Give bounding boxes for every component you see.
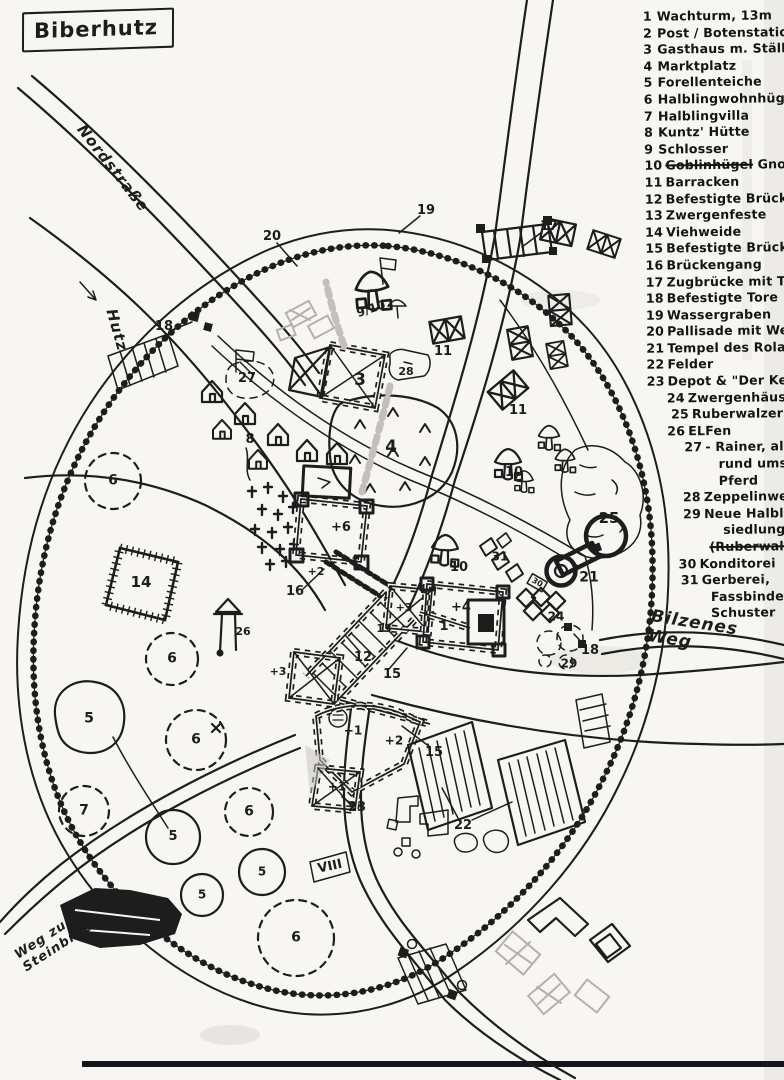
legend-item-text: Depot & "Der Keller" (668, 372, 784, 389)
legend-item: 6Halblingwohnhügel (644, 90, 781, 108)
map-marker: 6 (167, 652, 177, 667)
map-marker: 18 (155, 320, 173, 334)
map-marker: +3 (396, 602, 413, 614)
legend-item-text-struck: (Ruberwalzer) (709, 538, 784, 554)
legend-item-number: 11 (645, 174, 663, 191)
legend-item: 12Befestigte Brücke (645, 190, 782, 208)
legend-item-number: 25 (671, 407, 689, 424)
legend-item-number: 13 (645, 208, 663, 225)
map-marker: 19 (417, 204, 435, 218)
fields (408, 722, 585, 845)
legend-item: 10Goblinhügel Gnompilze (644, 157, 781, 175)
legend-item-number: 17 (646, 274, 664, 291)
map-marker: 7 (79, 804, 89, 819)
legend-item: 27- Rainer, alles (647, 439, 784, 457)
map-marker: 29 (561, 658, 578, 671)
map-marker: +1 (328, 781, 346, 794)
map-marker: +2 (308, 566, 325, 578)
legend-item-number: 24 (667, 390, 685, 407)
legend-item: 3Gasthaus m. Ställen (643, 40, 780, 58)
legend-item-number: 9 (644, 141, 655, 158)
legend-item-text: Felder (667, 356, 713, 371)
legend-item-number: 3 (643, 42, 654, 59)
legend-item: 8Kuntz' Hütte (644, 123, 781, 141)
legend-item-number: 6 (644, 92, 655, 109)
legend-item-number: 31 (681, 572, 699, 589)
legend-item-text: ELFen (688, 423, 731, 438)
legend-item-text: Zeppelinwerft (704, 488, 784, 504)
legend-item: 17Zugbrücke mit Türmen (646, 273, 783, 291)
map-marker: 8 (245, 433, 254, 447)
map-marker: 27 (238, 372, 256, 386)
legend-item-subline: (Ruberwalzer) (648, 538, 784, 556)
map-marker: +2 (385, 735, 403, 748)
legend-item-subline: siedlung (648, 522, 784, 540)
legend-item-text: Post / Botenstation (657, 24, 784, 40)
legend-item-number: 16 (645, 257, 663, 274)
legend-item-number: 30 (679, 556, 697, 573)
map-marker: 26 (235, 626, 250, 638)
map-marker: 16 (286, 585, 304, 599)
legend-item: 5Forellenteiche (643, 74, 780, 92)
map-marker: 11 (434, 345, 452, 359)
map-marker: +3 (270, 666, 287, 678)
legend-item: 22Felder (646, 356, 783, 374)
legend-item: 18Befestigte Tore (646, 289, 783, 307)
map-marker: 4 (385, 439, 397, 457)
map-marker: 10 (505, 466, 523, 480)
legend-item: 11Barracken (645, 173, 782, 191)
map-marker: 28 (398, 366, 413, 378)
legend-item-text: Zwergenhäuser (688, 389, 784, 405)
legend-item-text: Pallisade mit Wehrgängen (667, 322, 784, 339)
map-marker: 20 (263, 230, 281, 244)
legend-item: 28Zeppelinwerft (648, 488, 784, 506)
legend-item: 13Zwergenfeste (645, 206, 782, 224)
map-marker: 3 (354, 372, 366, 390)
legend-item-number: 15 (645, 241, 663, 258)
legend-item-number: 22 (646, 357, 664, 374)
legend-item-text: Pferd (719, 472, 759, 487)
legend-item-number: 21 (646, 340, 664, 357)
map-marker: 15 (425, 746, 443, 760)
outer-estate (496, 898, 630, 1014)
legend-item: 23Depot & "Der Keller" (647, 372, 784, 390)
map-marker: 5 (198, 889, 206, 902)
legend-item: 21Tempel des Roland (646, 339, 783, 357)
legend-item-text: Gerberei, (702, 572, 770, 588)
legend-item-number: 14 (645, 224, 663, 241)
legend-item-text: Fassbinderei, (711, 588, 784, 604)
legend-item-text-struck: Goblinhügel (665, 157, 753, 173)
map-marker: 25 (599, 511, 620, 527)
legend-item: 14Viehweide (645, 223, 782, 241)
map-marker: 15 (383, 668, 401, 682)
legend-item-number: 26 (667, 423, 685, 440)
legend-item-text: Neue Halbling- (704, 505, 784, 521)
farm-buildings (387, 796, 508, 858)
legend-item: 15Befestigte Brückenhäuser (645, 240, 782, 258)
legend-item: 25Ruberwalzer (647, 406, 784, 424)
legend-item-text: rund ums (718, 455, 784, 471)
map-marker: 11 (509, 404, 527, 418)
legend-item-text: siedlung (723, 522, 784, 538)
legend-item-text: Wassergraben (667, 306, 771, 322)
legend-item-text: - Rainer, alles (705, 439, 784, 455)
map-marker: 14 (131, 575, 152, 591)
legend-item-number: 10 (644, 158, 662, 175)
legend-item: 29Neue Halbling- (648, 505, 784, 523)
map-marker: 12 (354, 651, 372, 665)
legend-item-text: Gasthaus m. Ställen (657, 40, 784, 57)
legend-item-text: Gnompilze (753, 156, 784, 172)
legend-item-number: 20 (646, 324, 664, 341)
map-marker: 13 (376, 623, 391, 635)
map-marker: 17 (540, 220, 558, 234)
legend-item-number: 1 (643, 9, 654, 26)
map-title: Biberhutz (22, 8, 174, 53)
map-marker: 5 (84, 712, 94, 727)
legend-item-number: 12 (645, 191, 663, 208)
map-marker: 31 (492, 551, 509, 564)
legend-item-number: 2 (643, 25, 654, 42)
legend-item-number: 18 (646, 291, 664, 308)
map-marker: +6 (331, 521, 351, 535)
legend-item: 1Wachturm, 13m (643, 7, 780, 25)
legend-item-number: 19 (646, 307, 664, 324)
legend-item-number: 23 (647, 374, 665, 391)
legend-item-number: 7 (644, 108, 655, 125)
legend-item: 31Gerberei, (649, 571, 784, 589)
map-marker: 6 (291, 931, 301, 946)
legend-item-text: Befestigte Brückenhäuser (666, 239, 784, 256)
legend-item-text: Zugbrücke mit Türmen (667, 272, 784, 289)
map-marker: 6 (108, 474, 118, 489)
map-marker: +4 (451, 601, 471, 615)
east-palisade-river-crossing (576, 694, 610, 748)
scanned-map-page: Biberhutz 1Wachturm, 13m2Post / Botensta… (0, 0, 784, 1080)
map-marker: 5 (168, 830, 177, 844)
legend-item-number: 5 (643, 75, 654, 92)
legend-item-number: 4 (643, 58, 654, 75)
map-marker: 10 (450, 561, 468, 575)
map-marker: 5 (258, 866, 266, 879)
legend-item-text: Halblingvilla (658, 107, 749, 123)
legend-item-text: Barracken (665, 174, 739, 190)
legend-item-text: Wachturm, 13m (657, 7, 772, 23)
map-marker: 23 (348, 801, 366, 815)
legend-item-number: 27 (684, 440, 702, 457)
legend-item-number: 29 (683, 506, 701, 523)
legend-item-text: Forellenteiche (657, 74, 761, 90)
legend-item-text: Schlosser (658, 141, 728, 157)
map-marker: 18 (581, 644, 599, 658)
legend-item: 30Konditorei (649, 555, 784, 573)
legend-item-text: Befestigte Brücke (666, 190, 784, 206)
map-marker: 22 (454, 819, 472, 833)
legend: 1Wachturm, 13m2Post / Botenstation3Gasth… (643, 7, 784, 622)
legend-item-text: Kuntz' Hütte (658, 124, 750, 140)
legend-item-text: Viehweide (666, 223, 741, 239)
legend-item: 9Schlosser (644, 140, 781, 158)
legend-item-text: Ruberwalzer (692, 406, 783, 422)
legend-item: 4Marktplatz (643, 57, 780, 75)
legend-item-number: 8 (644, 125, 655, 142)
map-marker: 21 (579, 571, 598, 586)
legend-item-text: Halblingwohnhügel (658, 90, 784, 106)
map-marker: +1 (344, 725, 362, 738)
barracks (429, 218, 620, 410)
legend-item: 20Pallisade mit Wehrgängen (646, 323, 783, 341)
legend-item: 26ELFen (647, 422, 784, 440)
legend-item-text: Tempel des Roland (667, 339, 784, 355)
legend-item-text: Marktplatz (657, 58, 736, 74)
legend-item: 24Zwergenhäuser (647, 389, 784, 407)
map-marker: 24 (548, 611, 565, 624)
legend-item-text: Brückengang (666, 256, 762, 272)
map-marker: 6 (244, 805, 254, 820)
legend-item-text: Zwergenfeste (666, 207, 767, 223)
map-marker: 6 (191, 733, 201, 748)
legend-item-text: Konditorei (699, 555, 775, 571)
gasthaus (289, 345, 385, 408)
legend-item-subline: rund ums (647, 455, 784, 473)
map-marker: 1 (439, 620, 448, 634)
legend-item: 16Brückengang (645, 256, 782, 274)
legend-item: 2Post / Botenstation (643, 24, 780, 42)
legend-item: 7Halblingvilla (644, 107, 781, 125)
legend-item-subline: Fassbinderei, (649, 588, 784, 606)
legend-item-subline: Pferd (648, 472, 784, 490)
ruberwalzer-area (561, 446, 643, 558)
legend-item: 19Wassergraben (646, 306, 783, 324)
legend-item-text: Befestigte Tore (667, 289, 778, 305)
legend-item-number: 28 (683, 489, 701, 506)
